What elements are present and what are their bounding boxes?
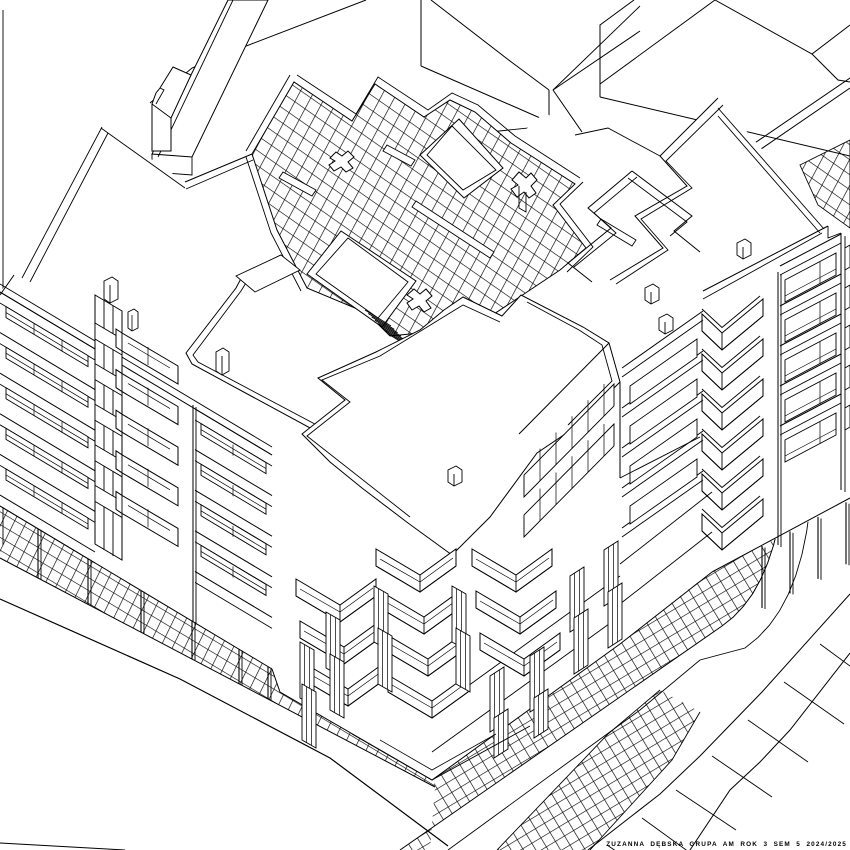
svg-text:ZUZANNA DĘBSKA GRUPA AM ROK 3: ZUZANNA DĘBSKA GRUPA AM ROK 3 SEM 5 2024… <box>606 841 847 848</box>
